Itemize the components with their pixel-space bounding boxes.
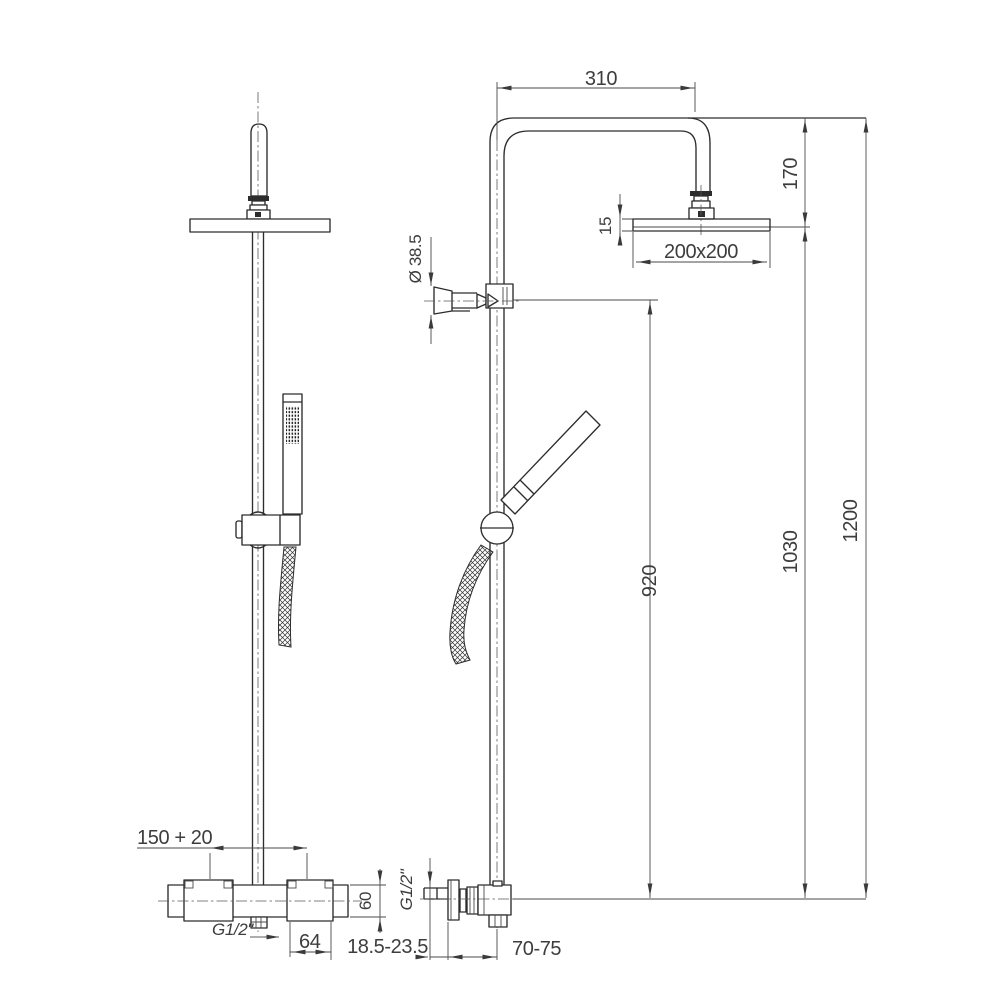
side-wall-valve — [420, 880, 530, 927]
outlet-thread-label: G1/2" — [212, 920, 254, 939]
dim-bracket-diameter: Ø 38.5 — [406, 235, 431, 344]
dim-total-height: 1200 — [840, 118, 866, 898]
dim-15-label: 15 — [596, 217, 615, 235]
side-shower-hose — [450, 545, 493, 664]
front-hand-shower — [283, 394, 302, 514]
dim-rail-height: 920 — [513, 300, 661, 898]
side-shower-head — [622, 219, 810, 231]
dim-head-thickness: 15 — [596, 194, 620, 244]
dim-38-5-label: Ø 38.5 — [406, 235, 425, 284]
front-shower-head-edge — [190, 219, 330, 232]
dim-block-width: 64 — [290, 922, 331, 960]
dim-170-label: 170 — [780, 158, 802, 190]
dim-64-label: 64 — [299, 931, 321, 953]
side-wall-bracket — [424, 284, 520, 314]
mixer-left-block — [184, 880, 233, 921]
mixer-right-block — [287, 880, 333, 921]
dim-valve-centers: 150 + 20 — [137, 827, 307, 879]
side-head-connector — [689, 185, 714, 237]
dim-arm-width: 310 — [497, 68, 695, 140]
dim-head-center-height: 1030 — [780, 227, 805, 898]
dim-310-label: 310 — [585, 68, 617, 90]
technical-drawing-canvas: 150 + 20 G1/2" 64 60 — [0, 0, 1000, 1000]
front-top-pipe — [247, 124, 270, 219]
shower-system-drawing: 150 + 20 G1/2" 64 60 — [0, 0, 1000, 1000]
front-view: 150 + 20 G1/2" 64 60 — [137, 92, 386, 960]
dim-60-label: 60 — [356, 892, 375, 910]
dim-18-5-23-5-label: 18.5-23.5 — [347, 936, 428, 958]
dim-outlet-thread: G1/2" — [212, 920, 279, 939]
front-slider-bracket — [236, 512, 300, 548]
dimension-annotations: 310 15 200x200 Ø 38.5 170 — [347, 68, 866, 960]
inlet-thread-label: G1/2" — [397, 868, 416, 910]
hand-shower-wand — [501, 411, 600, 514]
dim-1030-label: 1030 — [780, 530, 802, 573]
front-mixer — [158, 880, 362, 928]
spray-face — [286, 406, 299, 444]
dim-wall-distances: 18.5-23.5 70-75 — [347, 922, 561, 960]
dim-mixer-height: 60 — [350, 869, 386, 933]
side-column-and-arm — [490, 118, 866, 885]
dim-head-drop: 170 — [780, 118, 805, 227]
mixer-outlet — [251, 917, 267, 928]
dim-150-20-label: 150 + 20 — [137, 827, 212, 849]
dim-head-size: 200x200 — [633, 232, 770, 268]
side-view — [420, 118, 866, 928]
front-shower-hose — [278, 547, 296, 647]
dim-1200-label: 1200 — [840, 499, 862, 542]
dim-70-75-label: 70-75 — [512, 938, 561, 960]
side-hand-shower — [480, 411, 600, 544]
dim-200x200-label: 200x200 — [664, 241, 738, 263]
dim-920-label: 920 — [639, 565, 661, 597]
